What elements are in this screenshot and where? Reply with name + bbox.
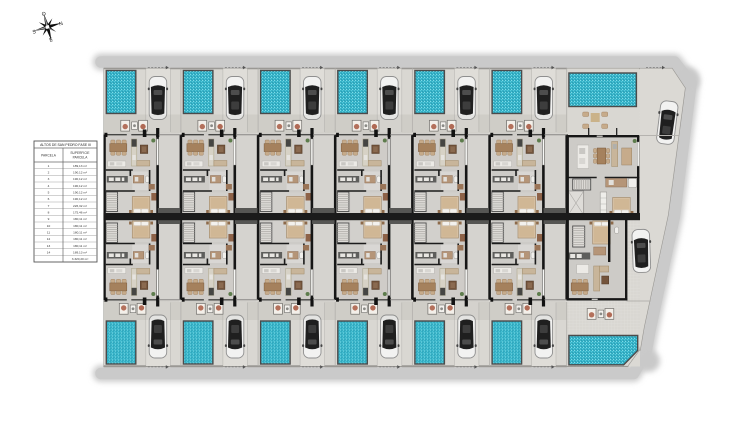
- svg-text:180,11 m²: 180,11 m²: [73, 231, 87, 235]
- svg-text:14: 14: [47, 251, 51, 255]
- svg-text:189,13 m²: 189,13 m²: [73, 164, 87, 168]
- svg-text:190,12 m²: 190,12 m²: [73, 177, 87, 181]
- svg-text:190,12 m²: 190,12 m²: [73, 184, 87, 188]
- svg-text:180,11 m²: 180,11 m²: [73, 217, 87, 221]
- svg-text:1: 1: [48, 164, 50, 168]
- svg-text:175,46 m²: 175,46 m²: [73, 211, 87, 215]
- svg-text:ALTOS DE SAN PEDRO FASE III: ALTOS DE SAN PEDRO FASE III: [40, 143, 91, 147]
- svg-text:13: 13: [47, 244, 51, 248]
- svg-text:190,12 m²: 190,12 m²: [73, 191, 87, 195]
- svg-text:180,11 m²: 180,11 m²: [73, 244, 87, 248]
- svg-text:3.320,20 m²: 3.320,20 m²: [72, 257, 89, 261]
- svg-text:6: 6: [48, 197, 50, 201]
- svg-text:189,13 m²: 189,13 m²: [73, 251, 87, 255]
- svg-text:4: 4: [48, 184, 50, 188]
- svg-text:2: 2: [48, 171, 50, 175]
- svg-text:9: 9: [48, 217, 50, 221]
- svg-text:PARCELA: PARCELA: [41, 154, 57, 158]
- svg-text:12: 12: [47, 237, 51, 241]
- svg-text:226,32 m²: 226,32 m²: [73, 204, 87, 208]
- svg-text:180,11 m²: 180,11 m²: [73, 224, 87, 228]
- svg-text:180,11 m²: 180,11 m²: [73, 237, 87, 241]
- svg-text:11: 11: [47, 231, 50, 235]
- svg-text:7: 7: [48, 204, 50, 208]
- svg-text:190,12 m²: 190,12 m²: [73, 197, 87, 201]
- svg-text:SUPERFICIE: SUPERFICIE: [70, 151, 89, 155]
- svg-text:8: 8: [48, 211, 50, 215]
- svg-text:190,12 m²: 190,12 m²: [73, 171, 87, 175]
- svg-text:5: 5: [48, 191, 50, 195]
- svg-text:3: 3: [48, 177, 50, 181]
- svg-text:PARCELA: PARCELA: [73, 156, 89, 160]
- svg-text:10: 10: [47, 224, 51, 228]
